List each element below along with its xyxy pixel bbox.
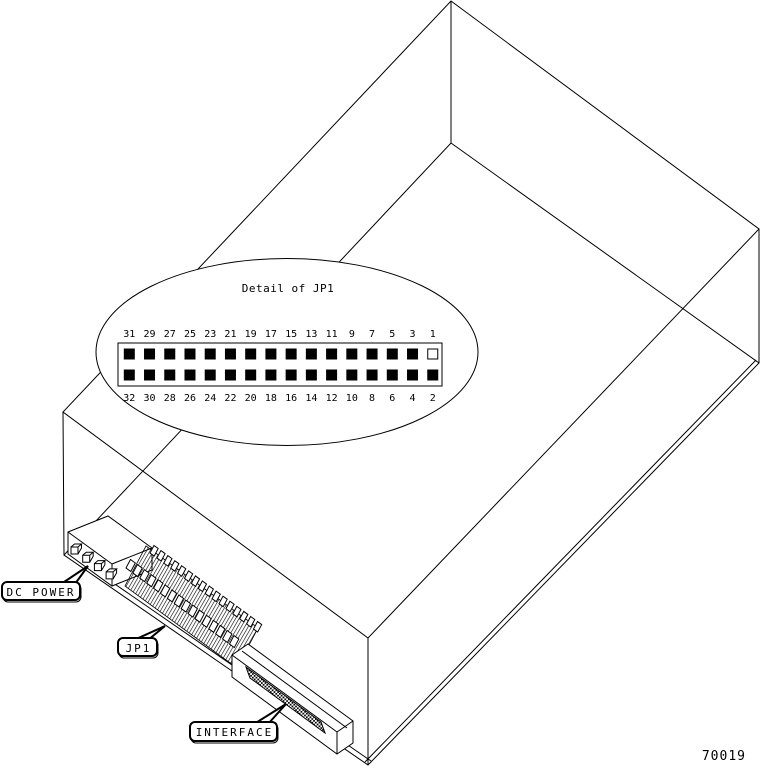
jumper-pin xyxy=(286,370,296,380)
pin-number-top: 3 xyxy=(410,329,416,340)
jumper-pin xyxy=(246,370,256,380)
jumper-pin xyxy=(408,370,418,380)
jumper-pin xyxy=(124,370,134,380)
pin-number-bottom: 32 xyxy=(123,393,135,404)
pin-number-top: 9 xyxy=(349,329,355,340)
pin-number-bottom: 14 xyxy=(305,393,317,404)
jumper-pin xyxy=(347,370,357,380)
pin-number-top: 21 xyxy=(224,329,236,340)
jumper-pin xyxy=(145,349,155,359)
pin-number-top: 17 xyxy=(265,329,277,340)
pin-number-top: 15 xyxy=(285,329,297,340)
pin-number-top: 23 xyxy=(204,329,216,340)
jumper-pin xyxy=(327,349,337,359)
callout-interface-label: INTERFACE xyxy=(196,726,274,739)
jumper-pin xyxy=(367,349,377,359)
isometric-drive-diagram: Detail of JP1 31292725232119171513119753… xyxy=(0,0,761,776)
callout-jp1-label: JP1 xyxy=(126,642,152,655)
jumper-pin xyxy=(246,349,256,359)
jumper-pin xyxy=(145,370,155,380)
jumper-pin-open xyxy=(428,349,438,359)
pin-number-bottom: 30 xyxy=(144,393,156,404)
jumper-pin xyxy=(266,349,276,359)
pin-number-bottom: 16 xyxy=(285,393,297,404)
jumper-pin xyxy=(205,370,215,380)
pin-number-bottom: 10 xyxy=(346,393,358,404)
jumper-pin xyxy=(225,349,235,359)
detail-ellipse-callout: Detail of JP1 31292725232119171513119753… xyxy=(96,259,478,446)
jumper-pin xyxy=(225,370,235,380)
pin-number-bottom: 4 xyxy=(410,393,416,404)
jumper-pin xyxy=(327,370,337,380)
jumper-pin xyxy=(347,349,357,359)
pin-number-top: 13 xyxy=(305,329,317,340)
jumper-pin xyxy=(387,349,397,359)
jp1-back-pin xyxy=(254,622,262,633)
jumper-pin xyxy=(306,370,316,380)
pin-number-top: 19 xyxy=(245,329,257,340)
bottom-face-edges xyxy=(64,143,759,765)
callout-interface: INTERFACE xyxy=(190,704,286,743)
jumper-pin xyxy=(205,349,215,359)
pin-number-bottom: 22 xyxy=(224,393,236,404)
jumper-pin xyxy=(165,349,175,359)
pin-number-bottom: 6 xyxy=(389,393,395,404)
pin-number-top: 5 xyxy=(389,329,395,340)
pin-number-top: 27 xyxy=(164,329,176,340)
jumper-pin xyxy=(408,349,418,359)
pin-number-bottom: 2 xyxy=(430,393,436,404)
jumper-pin xyxy=(266,370,276,380)
jumper-pin xyxy=(124,349,134,359)
jumper-pin xyxy=(286,349,296,359)
callout-dc-power: DC POWER xyxy=(2,566,88,602)
pin-number-top: 31 xyxy=(123,329,135,340)
pin-number-bottom: 24 xyxy=(204,393,216,404)
figure-number: 70019 xyxy=(702,749,746,764)
jumper-pin xyxy=(185,349,195,359)
pin-number-top: 25 xyxy=(184,329,196,340)
pin-number-top: 7 xyxy=(369,329,375,340)
jumper-pin xyxy=(387,370,397,380)
callout-jp1: JP1 xyxy=(118,626,165,658)
jumper-pin xyxy=(185,370,195,380)
pin-number-bottom: 18 xyxy=(265,393,277,404)
pin-number-top: 1 xyxy=(430,329,436,340)
jumper-pin xyxy=(367,370,377,380)
technical-figure: Detail of JP1 31292725232119171513119753… xyxy=(0,0,761,776)
pin-number-top: 29 xyxy=(144,329,156,340)
callout-dc-power-label: DC POWER xyxy=(7,586,76,599)
pin-number-bottom: 20 xyxy=(245,393,257,404)
jumper-pin xyxy=(306,349,316,359)
pin-number-top: 11 xyxy=(326,329,338,340)
pin-number-bottom: 8 xyxy=(369,393,375,404)
pin-number-bottom: 28 xyxy=(164,393,176,404)
detail-title: Detail of JP1 xyxy=(242,282,335,295)
pin-number-bottom: 12 xyxy=(326,393,338,404)
pin-number-bottom: 26 xyxy=(184,393,196,404)
jumper-pin xyxy=(428,370,438,380)
jumper-pin xyxy=(165,370,175,380)
